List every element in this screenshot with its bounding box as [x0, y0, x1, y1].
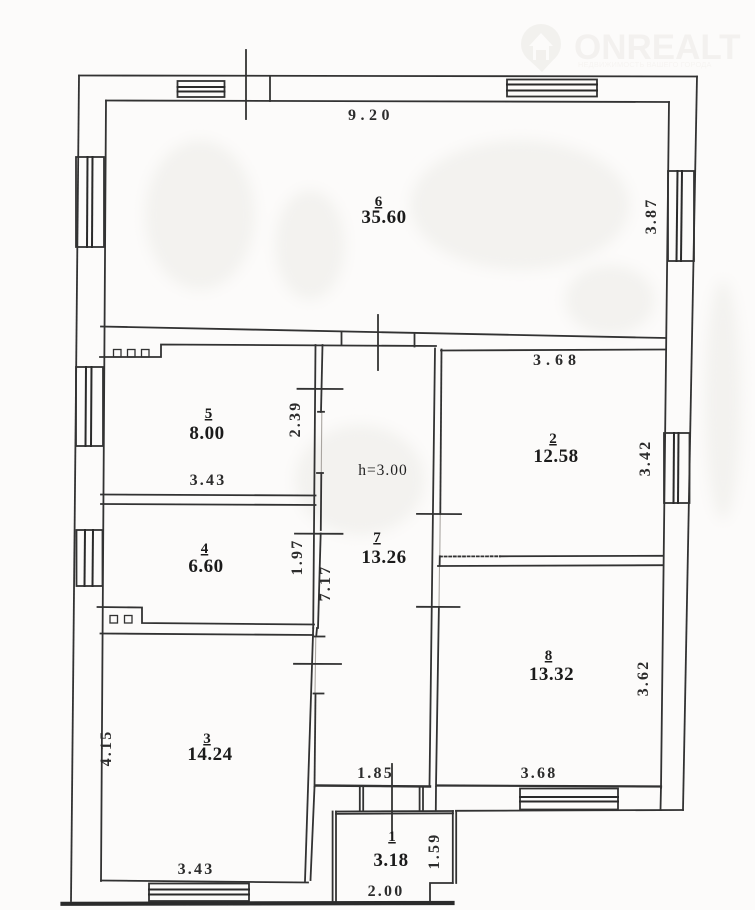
svg-text:7.17: 7.17 — [317, 565, 334, 602]
svg-text:3.18: 3.18 — [373, 850, 408, 871]
svg-text:3.62: 3.62 — [635, 660, 652, 697]
svg-text:3.68: 3.68 — [521, 765, 558, 782]
svg-text:1.59: 1.59 — [426, 833, 443, 870]
svg-text:2: 2 — [549, 431, 557, 447]
svg-text:3.42: 3.42 — [637, 440, 654, 477]
svg-text:8: 8 — [545, 648, 553, 664]
svg-text:13.26: 13.26 — [361, 547, 406, 568]
svg-text:4.15: 4.15 — [98, 730, 115, 767]
svg-text:2.39: 2.39 — [287, 401, 304, 438]
svg-text:14.24: 14.24 — [187, 744, 232, 765]
svg-text:9.20: 9.20 — [348, 107, 394, 124]
svg-text:4: 4 — [201, 541, 209, 557]
svg-text:6.60: 6.60 — [188, 556, 223, 577]
svg-text:1: 1 — [388, 829, 396, 845]
svg-text:13.32: 13.32 — [529, 664, 574, 685]
svg-text:5: 5 — [205, 406, 213, 422]
svg-text:8.00: 8.00 — [189, 423, 224, 444]
svg-text:3.68: 3.68 — [533, 352, 581, 369]
svg-text:1.85: 1.85 — [357, 765, 394, 782]
svg-text:2.00: 2.00 — [368, 883, 405, 900]
svg-text:3.43: 3.43 — [178, 861, 215, 878]
svg-text:3.87: 3.87 — [643, 198, 660, 235]
svg-text:3.43: 3.43 — [190, 472, 227, 489]
svg-text:7: 7 — [373, 530, 381, 546]
svg-text:35.60: 35.60 — [361, 207, 406, 228]
svg-text:h=3.00: h=3.00 — [358, 462, 408, 479]
svg-text:12.58: 12.58 — [533, 446, 578, 467]
svg-text:1.97: 1.97 — [289, 539, 306, 576]
svg-text:НЕДВИЖИМОСТЬ ВАШЕГО ГОРОДА: НЕДВИЖИМОСТЬ ВАШЕГО ГОРОДА — [578, 60, 712, 69]
